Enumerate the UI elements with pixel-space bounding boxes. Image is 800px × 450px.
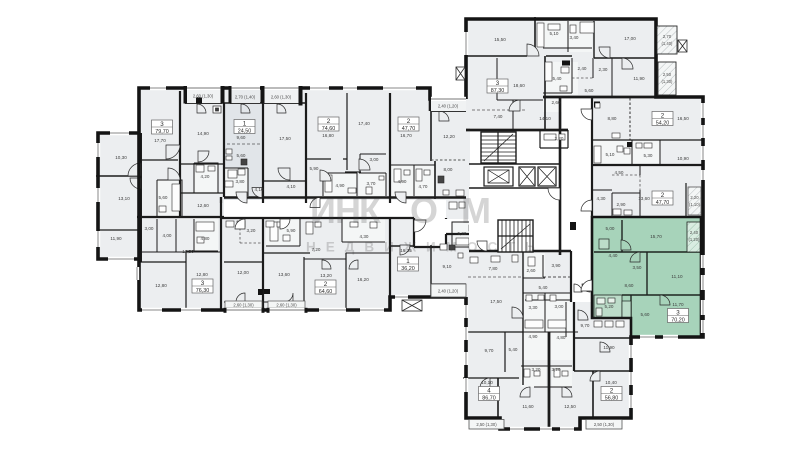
svg-text:7,80: 7,80 bbox=[489, 266, 498, 271]
svg-text:И: И bbox=[310, 190, 336, 231]
svg-text:16,80: 16,80 bbox=[322, 133, 334, 138]
svg-text:1: 1 bbox=[406, 258, 410, 265]
svg-text:4,40: 4,40 bbox=[609, 253, 618, 258]
svg-text:(1,30): (1,30) bbox=[662, 79, 674, 84]
svg-text:4,30: 4,30 bbox=[360, 234, 369, 239]
svg-text:2,20: 2,20 bbox=[690, 195, 699, 200]
svg-text:2,30: 2,30 bbox=[599, 67, 608, 72]
svg-text:10,50: 10,50 bbox=[182, 249, 194, 254]
svg-text:4,00: 4,00 bbox=[163, 233, 172, 238]
svg-text:4,10: 4,10 bbox=[287, 184, 296, 189]
svg-text:14,90: 14,90 bbox=[197, 131, 209, 136]
svg-text:87,30: 87,30 bbox=[491, 88, 505, 94]
svg-text:15,50: 15,50 bbox=[494, 37, 506, 42]
svg-text:17,50: 17,50 bbox=[279, 136, 291, 141]
svg-text:2: 2 bbox=[661, 192, 665, 199]
svg-text:47,70: 47,70 bbox=[656, 200, 670, 206]
svg-text:16,50: 16,50 bbox=[677, 116, 689, 121]
svg-text:8,60: 8,60 bbox=[625, 283, 634, 288]
svg-text:2,40 (1,20): 2,40 (1,20) bbox=[438, 289, 459, 294]
svg-text:3,00: 3,00 bbox=[145, 226, 154, 231]
svg-text:2: 2 bbox=[327, 118, 331, 125]
svg-text:16,70: 16,70 bbox=[400, 133, 412, 138]
svg-text:1: 1 bbox=[243, 120, 247, 127]
svg-text:(1,20): (1,20) bbox=[689, 237, 701, 242]
svg-text:(1,10): (1,10) bbox=[689, 202, 701, 207]
svg-text:2,50: 2,50 bbox=[663, 72, 672, 77]
svg-text:3,50: 3,50 bbox=[633, 265, 642, 270]
svg-text:3: 3 bbox=[201, 280, 205, 287]
svg-text:2,70 (1,40): 2,70 (1,40) bbox=[235, 95, 256, 100]
svg-text:2,60 (1,30): 2,60 (1,30) bbox=[276, 303, 297, 308]
svg-text:12,60: 12,60 bbox=[197, 203, 209, 208]
svg-text:79,70: 79,70 bbox=[155, 129, 169, 135]
svg-text:5,20: 5,20 bbox=[605, 304, 614, 309]
svg-text:5,40: 5,40 bbox=[553, 76, 562, 81]
svg-text:4,70: 4,70 bbox=[419, 184, 428, 189]
svg-text:56,80: 56,80 bbox=[605, 395, 619, 401]
svg-text:11,90: 11,90 bbox=[110, 236, 122, 241]
svg-text:3,20: 3,20 bbox=[532, 367, 541, 372]
svg-text:О: О bbox=[410, 190, 438, 231]
svg-text:2: 2 bbox=[407, 118, 411, 125]
svg-text:10,10: 10,10 bbox=[481, 380, 493, 385]
svg-text:4,30: 4,30 bbox=[597, 196, 606, 201]
svg-text:54,20: 54,20 bbox=[656, 120, 670, 126]
svg-text:10,90: 10,90 bbox=[677, 156, 689, 161]
svg-text:2,50 (1,30): 2,50 (1,30) bbox=[476, 422, 497, 427]
svg-text:5,20: 5,20 bbox=[458, 231, 467, 236]
svg-text:15,70: 15,70 bbox=[650, 234, 662, 239]
svg-text:2,70: 2,70 bbox=[663, 34, 672, 39]
svg-text:М: М bbox=[461, 190, 491, 231]
svg-text:5,30: 5,30 bbox=[644, 153, 653, 158]
svg-text:3: 3 bbox=[676, 309, 680, 316]
svg-text:18,60: 18,60 bbox=[513, 83, 525, 88]
svg-text:3,00: 3,00 bbox=[370, 157, 379, 162]
svg-text:4,80: 4,80 bbox=[557, 335, 566, 340]
svg-text:11,90: 11,90 bbox=[633, 76, 645, 81]
svg-text:70,20: 70,20 bbox=[671, 317, 685, 323]
svg-text:17,70: 17,70 bbox=[154, 138, 166, 143]
svg-text:3,00: 3,00 bbox=[555, 304, 564, 309]
svg-text:2,40: 2,40 bbox=[578, 66, 587, 71]
svg-text:5,90: 5,90 bbox=[310, 166, 319, 171]
svg-text:5,10: 5,10 bbox=[606, 152, 615, 157]
svg-text:3: 3 bbox=[496, 80, 500, 87]
svg-text:3,90: 3,90 bbox=[552, 263, 561, 268]
svg-text:17,00: 17,00 bbox=[624, 36, 636, 41]
svg-text:74,60: 74,60 bbox=[322, 126, 336, 132]
svg-text:9,70: 9,70 bbox=[581, 323, 590, 328]
svg-text:12,50: 12,50 bbox=[564, 404, 576, 409]
svg-text:5,60: 5,60 bbox=[237, 153, 246, 158]
svg-text:17,40: 17,40 bbox=[358, 121, 370, 126]
svg-text:5,00: 5,00 bbox=[606, 226, 615, 231]
svg-text:4,10: 4,10 bbox=[255, 187, 264, 192]
svg-text:Н: Н bbox=[335, 190, 361, 231]
svg-text:11,90: 11,90 bbox=[603, 345, 615, 350]
svg-text:3,20: 3,20 bbox=[552, 367, 561, 372]
svg-text:11,70: 11,70 bbox=[672, 302, 684, 307]
svg-text:3,80: 3,80 bbox=[236, 179, 245, 184]
svg-text:13,20: 13,20 bbox=[320, 273, 332, 278]
svg-text:14,10: 14,10 bbox=[539, 116, 551, 121]
svg-text:2: 2 bbox=[661, 112, 665, 119]
svg-text:16,20: 16,20 bbox=[357, 277, 369, 282]
svg-text:10,40: 10,40 bbox=[605, 380, 617, 385]
svg-text:11,10: 11,10 bbox=[671, 274, 683, 279]
svg-text:12,20: 12,20 bbox=[443, 134, 455, 139]
svg-text:86,70: 86,70 bbox=[482, 395, 496, 401]
svg-text:4: 4 bbox=[487, 387, 491, 394]
svg-text:76,30: 76,30 bbox=[196, 288, 210, 294]
svg-text:(1,40): (1,40) bbox=[662, 41, 674, 46]
svg-text:36,20: 36,20 bbox=[401, 266, 415, 272]
svg-text:5,40: 5,40 bbox=[509, 347, 518, 352]
svg-text:7,40: 7,40 bbox=[494, 114, 503, 119]
svg-text:5,60: 5,60 bbox=[585, 88, 594, 93]
svg-text:2,60 (1,30): 2,60 (1,30) bbox=[233, 303, 254, 308]
svg-text:12,00: 12,00 bbox=[237, 270, 249, 275]
svg-text:5,90: 5,90 bbox=[287, 228, 296, 233]
svg-text:5,40: 5,40 bbox=[539, 285, 548, 290]
svg-text:К: К bbox=[359, 190, 382, 231]
svg-text:9,10: 9,10 bbox=[443, 264, 452, 269]
svg-text:4,90: 4,90 bbox=[336, 183, 345, 188]
svg-text:17,50: 17,50 bbox=[490, 299, 502, 304]
svg-text:2,60 (1,30): 2,60 (1,30) bbox=[193, 94, 214, 99]
svg-text:5,60: 5,60 bbox=[159, 195, 168, 200]
svg-text:13,60: 13,60 bbox=[278, 272, 290, 277]
svg-text:13,10: 13,10 bbox=[118, 196, 130, 201]
svg-text:3,40: 3,40 bbox=[570, 35, 579, 40]
svg-text:3,70: 3,70 bbox=[367, 181, 376, 186]
svg-text:3,20: 3,20 bbox=[247, 228, 256, 233]
svg-text:2,60: 2,60 bbox=[527, 268, 536, 273]
svg-text:2,40: 2,40 bbox=[690, 230, 699, 235]
svg-text:2,40 (1,20): 2,40 (1,20) bbox=[438, 104, 459, 109]
svg-text:11,60: 11,60 bbox=[522, 404, 534, 409]
svg-text:24,50: 24,50 bbox=[238, 128, 252, 134]
svg-text:9,60: 9,60 bbox=[237, 135, 246, 140]
svg-text:3,30: 3,30 bbox=[529, 305, 538, 310]
svg-text:13,60: 13,60 bbox=[638, 196, 650, 201]
svg-text:4,90: 4,90 bbox=[398, 179, 407, 184]
svg-text:10,30: 10,30 bbox=[115, 155, 127, 160]
svg-text:5,10: 5,10 bbox=[550, 31, 559, 36]
svg-text:9,70: 9,70 bbox=[485, 348, 494, 353]
svg-text:47,70: 47,70 bbox=[402, 126, 416, 132]
svg-text:4,90: 4,90 bbox=[529, 334, 538, 339]
svg-text:3: 3 bbox=[160, 121, 164, 128]
svg-text:4,50: 4,50 bbox=[615, 170, 624, 175]
svg-text:2,50 (1,30): 2,50 (1,30) bbox=[594, 422, 615, 427]
svg-text:2,60: 2,60 bbox=[552, 100, 561, 105]
svg-text:8,00: 8,00 bbox=[444, 167, 453, 172]
svg-text:2: 2 bbox=[324, 281, 328, 288]
svg-text:2,20: 2,20 bbox=[555, 136, 564, 141]
svg-text:4,20: 4,20 bbox=[201, 174, 210, 179]
svg-text:2,90: 2,90 bbox=[617, 202, 626, 207]
svg-text:12,80: 12,80 bbox=[155, 283, 167, 288]
svg-text:5,60: 5,60 bbox=[641, 312, 650, 317]
svg-text:12,80: 12,80 bbox=[196, 272, 208, 277]
svg-text:4,80: 4,80 bbox=[201, 236, 210, 241]
svg-text:НЕДВИЖИМОСТЬ: НЕДВИЖИМОСТЬ bbox=[306, 240, 545, 255]
svg-text:2: 2 bbox=[610, 387, 614, 394]
svg-text:64,60: 64,60 bbox=[319, 289, 333, 295]
svg-text:2,60 (1,30): 2,60 (1,30) bbox=[271, 95, 292, 100]
svg-text:8,80: 8,80 bbox=[608, 116, 617, 121]
